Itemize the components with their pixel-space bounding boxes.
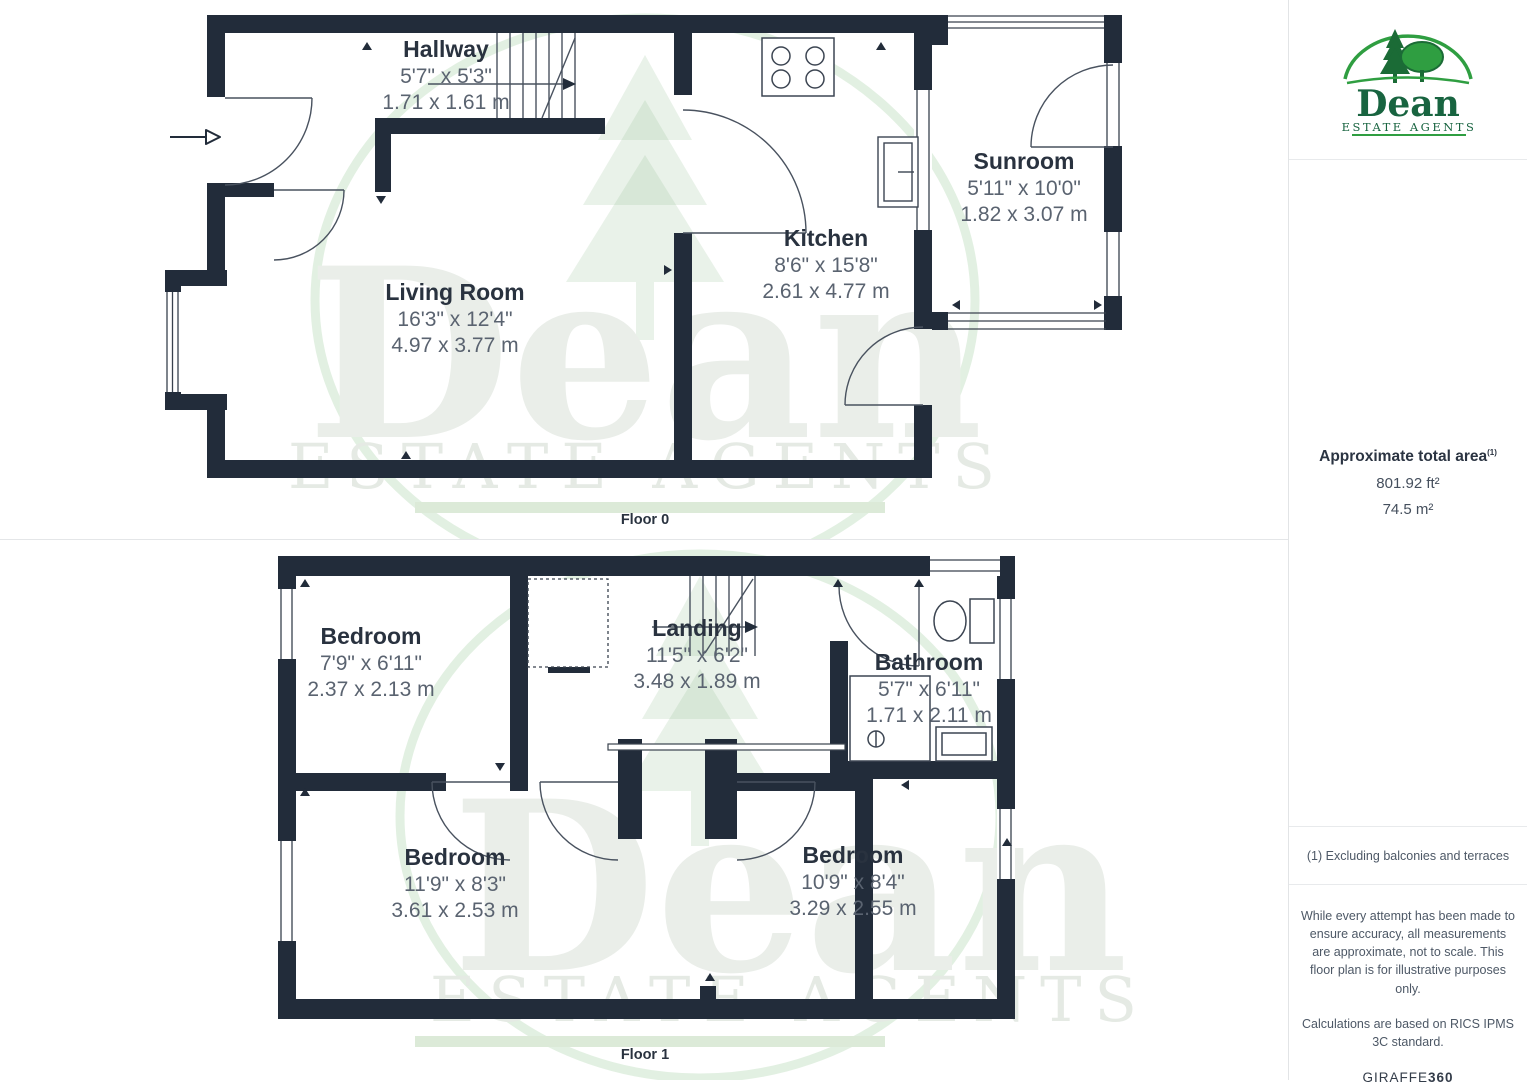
room-dim-imperial: 8'6" x 15'8" [762, 253, 889, 279]
giraffe360-brand: GIRAFFE360 [1289, 1070, 1527, 1085]
room-label-hallway: Hallway 5'7" x 5'3" 1.71 x 1.61 m [382, 36, 509, 117]
room-name: Hallway [382, 36, 509, 64]
room-dim-imperial: 16'3" x 12'4" [385, 307, 524, 333]
room-dim-imperial: 10'9" x 8'4" [789, 870, 916, 896]
area-m: 74.5 m² [1289, 501, 1527, 518]
room-dim-imperial: 11'9" x 8'3" [391, 872, 518, 898]
room-label-landing: Landing 11'5" x 6'2" 3.48 x 1.89 m [633, 615, 760, 696]
room-name: Bathroom [866, 649, 992, 677]
room-dim-imperial: 5'7" x 6'11" [866, 677, 992, 703]
room-dim-metric: 2.37 x 2.13 m [307, 677, 434, 703]
room-dim-imperial: 5'7" x 5'3" [382, 64, 509, 90]
round-tree-icon [1401, 42, 1443, 82]
floor-1-panel: Dean ESTATE AGENTS [0, 541, 1288, 1080]
area-footnote-marker: (1) [1487, 448, 1497, 457]
disclaimer-section: While every attempt has been made to ens… [1289, 885, 1527, 1085]
area-ft: 801.92 ft² [1289, 475, 1527, 492]
room-label-living-room: Living Room 16'3" x 12'4" 4.97 x 3.77 m [385, 279, 524, 360]
info-sidebar: Dean ESTATE AGENTS Approximate total are… [1288, 0, 1527, 1080]
toilet-icon [934, 599, 994, 643]
room-dim-metric: 3.61 x 2.53 m [391, 898, 518, 924]
room-label-bedroom-3: Bedroom 10'9" x 8'4" 3.29 x 2.55 m [789, 842, 916, 923]
floorplan-page: Dean ESTATE AGENTS [0, 0, 1527, 1080]
room-label-kitchen: Kitchen 8'6" x 15'8" 2.61 x 4.77 m [762, 225, 889, 306]
room-dim-imperial: 7'9" x 6'11" [307, 651, 434, 677]
hob-icon [762, 38, 834, 96]
disclaimer-accuracy: While every attempt has been made to ens… [1301, 907, 1515, 998]
total-area-section: Approximate total area(1) 801.92 ft² 74.… [1289, 160, 1527, 827]
floor-1-label: Floor 1 [621, 1047, 669, 1063]
logo-subtitle: ESTATE AGENTS [1342, 120, 1477, 134]
room-label-sunroom: Sunroom 5'11" x 10'0" 1.82 x 3.07 m [960, 148, 1087, 229]
dean-estate-agents-logo-icon: Dean ESTATE AGENTS [1322, 19, 1494, 141]
bathroom-sink-icon [936, 727, 992, 761]
logo-name: Dean [1356, 83, 1460, 125]
room-name: Bedroom [391, 844, 518, 872]
giraffe-text: GIRAFFE [1362, 1070, 1428, 1085]
room-label-bedroom-1: Bedroom 7'9" x 6'11" 2.37 x 2.13 m [307, 623, 434, 704]
room-dim-metric: 1.71 x 1.61 m [382, 90, 509, 116]
disclaimer-standard: Calculations are based on RICS IPMS 3C s… [1301, 1015, 1515, 1051]
room-dim-metric: 3.29 x 2.55 m [789, 896, 916, 922]
room-dim-metric: 3.48 x 1.89 m [633, 669, 760, 695]
sink-icon [878, 137, 918, 207]
floor-0-label: Floor 0 [621, 512, 669, 528]
agency-logo: Dean ESTATE AGENTS [1289, 0, 1527, 160]
room-name: Living Room [385, 279, 524, 307]
footnote-text: (1) Excluding balconies and terraces [1307, 849, 1509, 863]
room-name: Bedroom [789, 842, 916, 870]
door-arc [225, 65, 1113, 405]
room-dim-metric: 4.97 x 3.77 m [385, 333, 524, 359]
room-name: Sunroom [960, 148, 1087, 176]
room-dim-imperial: 5'11" x 10'0" [960, 176, 1087, 202]
room-name: Bedroom [307, 623, 434, 651]
floorplan-main: Dean ESTATE AGENTS [0, 0, 1288, 1080]
room-dim-metric: 2.61 x 4.77 m [762, 279, 889, 305]
room-name: Kitchen [762, 225, 889, 253]
giraffe-360: 360 [1428, 1070, 1454, 1085]
room-label-bedroom-2: Bedroom 11'9" x 8'3" 3.61 x 2.53 m [391, 844, 518, 925]
room-label-bathroom: Bathroom 5'7" x 6'11" 1.71 x 2.11 m [866, 649, 992, 730]
room-name: Landing [633, 615, 760, 643]
room-dim-metric: 1.82 x 3.07 m [960, 202, 1087, 228]
floor-0-panel: Dean ESTATE AGENTS [0, 0, 1288, 540]
room-dim-metric: 1.71 x 2.11 m [866, 703, 992, 729]
floor-0-plan [0, 0, 1288, 540]
area-title: Approximate total area(1) [1289, 448, 1527, 466]
room-dim-imperial: 11'5" x 6'2" [633, 643, 760, 669]
railing [608, 744, 845, 750]
entrance-arrow-icon [170, 130, 220, 144]
closet-icon [528, 579, 608, 667]
footnote-section: (1) Excluding balconies and terraces [1289, 827, 1527, 885]
